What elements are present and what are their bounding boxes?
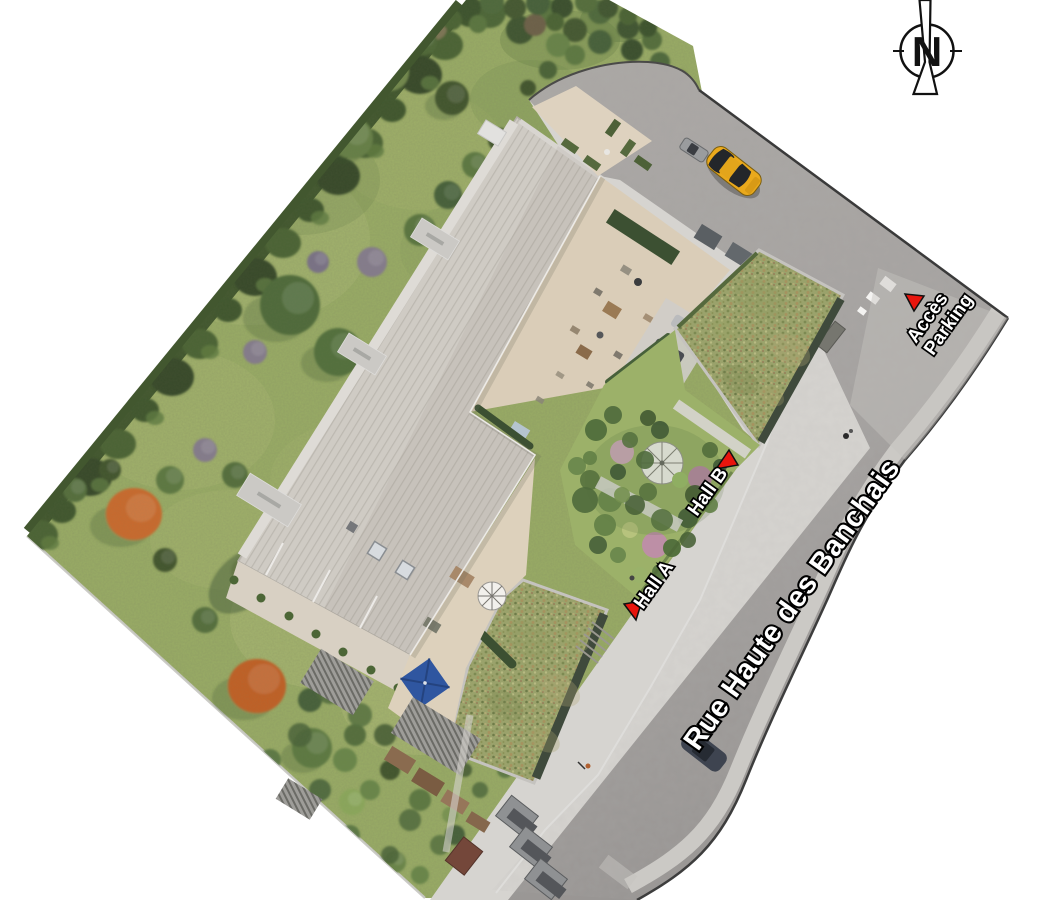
svg-text:N: N	[912, 28, 942, 75]
